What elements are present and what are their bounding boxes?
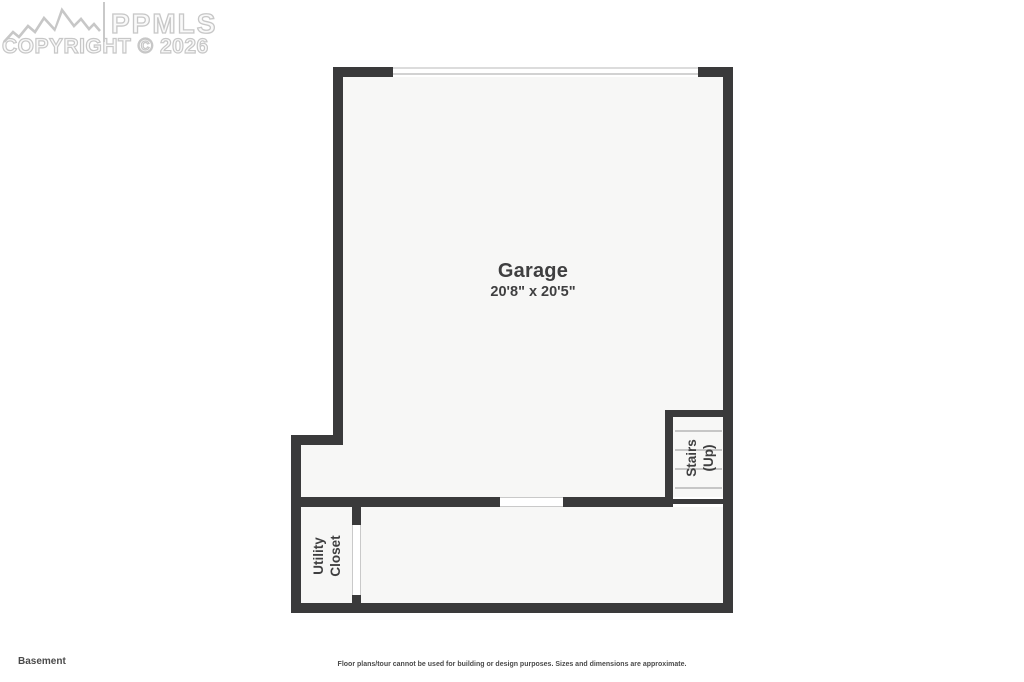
utility-closet-label-line1: Utility	[310, 535, 327, 576]
stairs-label-line1: Stairs	[683, 439, 700, 477]
lower-room-floor	[301, 507, 723, 603]
wall-middle-left-segment	[291, 497, 500, 507]
wall-closet-upper	[352, 507, 361, 525]
wall-stairs-top	[665, 410, 723, 417]
stairs-label: Stairs (Up)	[683, 439, 717, 477]
garage-name: Garage	[343, 260, 723, 283]
stair-tread-line	[675, 430, 722, 432]
wall-left-lower	[291, 435, 301, 613]
wall-closet-lower	[352, 595, 361, 603]
garage-label: Garage 20'8" x 20'5"	[343, 260, 723, 300]
garage-dimensions: 20'8" x 20'5"	[343, 284, 723, 300]
garage-floor-extension	[301, 445, 343, 497]
utility-closet-label-line2: Closet	[327, 535, 344, 576]
watermark-copyright: COPYRIGHT © 2026	[2, 35, 209, 59]
wall-stairs-left	[665, 410, 673, 497]
disclaimer-text: Floor plans/tour cannot be used for buil…	[0, 661, 1024, 668]
wall-left-upper	[333, 67, 343, 445]
closet-door-opening	[352, 525, 361, 595]
floor-plan-page: PPMLS COPYRIGHT © 2026 Garage 20'8" x 20…	[0, 0, 1024, 682]
wall-middle-right-segment	[563, 497, 673, 507]
stair-tread-line	[675, 487, 722, 489]
utility-closet-label: Utility Closet	[310, 535, 344, 576]
wall-bottom	[291, 603, 733, 613]
stairs-label-line2: (Up)	[700, 439, 717, 477]
garage-door-line	[393, 73, 698, 75]
interior-door-opening	[500, 497, 563, 507]
wall-below-stairs-thin	[673, 499, 723, 504]
watermark: PPMLS COPYRIGHT © 2026	[0, 0, 260, 70]
garage-door-opening	[393, 67, 698, 77]
wall-right	[723, 67, 733, 613]
garage-door-line-top	[393, 67, 698, 69]
